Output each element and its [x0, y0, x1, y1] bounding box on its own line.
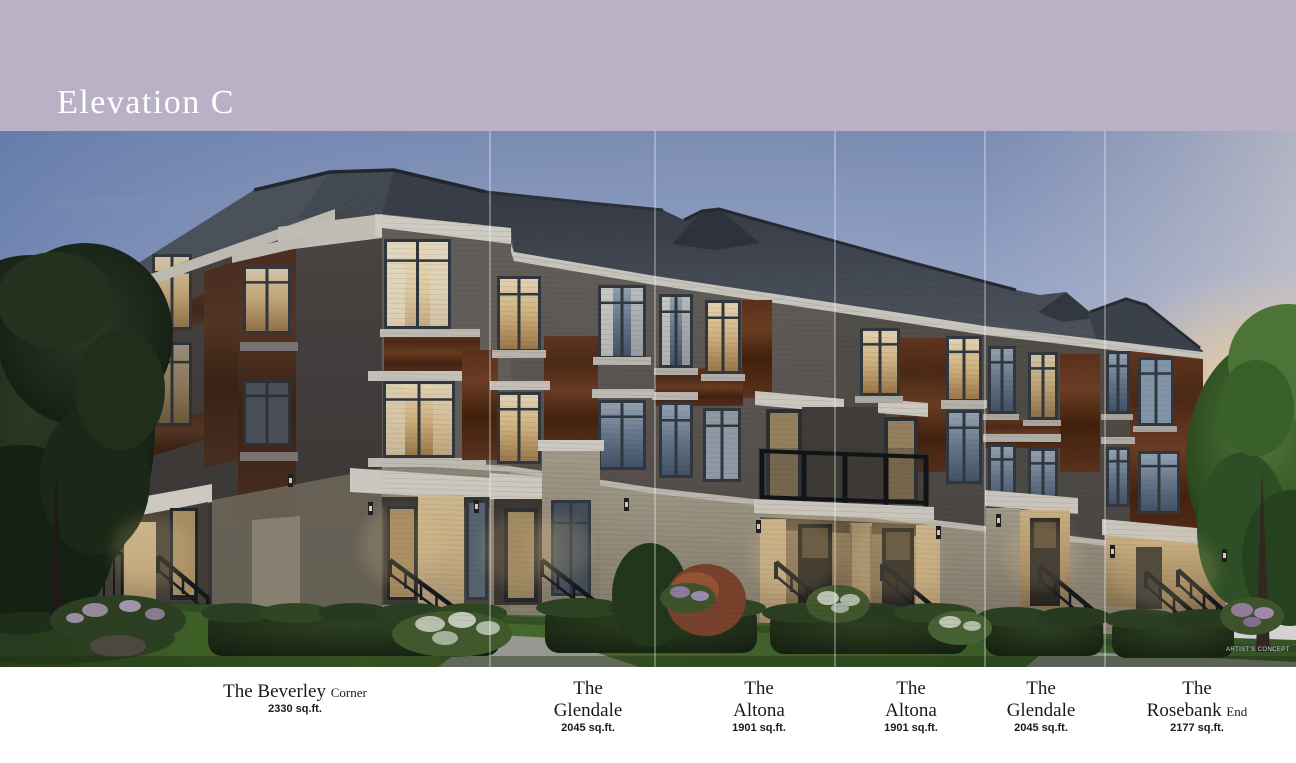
- svg-text:The: The: [896, 678, 926, 699]
- svg-text:Altona: Altona: [885, 700, 937, 721]
- svg-text:The: The: [573, 678, 603, 699]
- svg-text:Elevation C: Elevation C: [57, 84, 235, 121]
- svg-text:2330 sq.ft.: 2330 sq.ft.: [268, 703, 322, 715]
- svg-text:2045 sq.ft.: 2045 sq.ft.: [561, 722, 615, 734]
- svg-text:The: The: [1182, 678, 1212, 699]
- svg-text:Rosebank End: Rosebank End: [1147, 700, 1248, 721]
- svg-text:Glendale: Glendale: [1007, 700, 1076, 721]
- svg-text:Glendale: Glendale: [554, 700, 623, 721]
- svg-text:2045 sq.ft.: 2045 sq.ft.: [1014, 722, 1068, 734]
- svg-text:1901 sq.ft.: 1901 sq.ft.: [732, 722, 786, 734]
- svg-text:2177 sq.ft.: 2177 sq.ft.: [1170, 722, 1224, 734]
- svg-text:The: The: [1026, 678, 1056, 699]
- svg-text:The: The: [744, 678, 774, 699]
- svg-text:The Beverley Corner: The Beverley Corner: [223, 681, 367, 702]
- svg-text:1901 sq.ft.: 1901 sq.ft.: [884, 722, 938, 734]
- svg-text:Altona: Altona: [733, 700, 785, 721]
